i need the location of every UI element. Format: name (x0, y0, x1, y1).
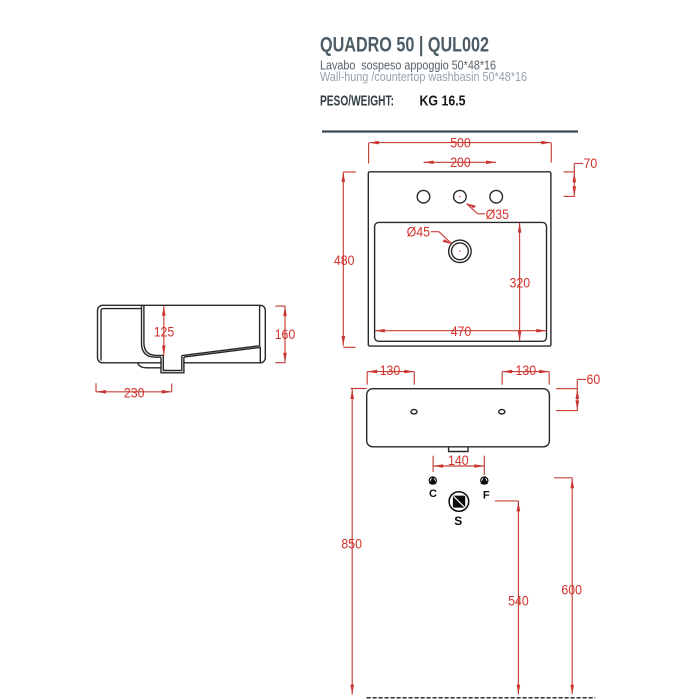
svg-text:Wall-hung /countertop washbasi: Wall-hung /countertop washbasin 50*48*16 (320, 69, 527, 84)
svg-text:320: 320 (510, 274, 531, 290)
svg-text:Ø35: Ø35 (486, 206, 510, 222)
svg-text:C: C (429, 488, 437, 500)
svg-text:540: 540 (508, 592, 529, 608)
svg-text:KG 16.5: KG 16.5 (420, 93, 466, 110)
svg-text:160: 160 (275, 326, 296, 342)
svg-text:500: 500 (450, 135, 471, 151)
svg-text:850: 850 (341, 535, 362, 551)
svg-text:230: 230 (124, 384, 145, 400)
svg-text:Ø45: Ø45 (407, 224, 431, 240)
svg-text:QUADRO 50 | QUL002: QUADRO 50 | QUL002 (320, 33, 489, 57)
svg-text:130: 130 (516, 362, 537, 378)
svg-text:F: F (483, 490, 490, 502)
svg-text:140: 140 (448, 452, 469, 468)
svg-text:60: 60 (587, 371, 601, 387)
svg-text:200: 200 (450, 154, 471, 170)
svg-text:70: 70 (584, 155, 598, 171)
svg-text:PESO/WEIGHT:: PESO/WEIGHT: (320, 93, 394, 110)
svg-text:125: 125 (154, 324, 175, 340)
svg-text:470: 470 (451, 323, 472, 339)
svg-text:600: 600 (561, 581, 582, 597)
svg-text:480: 480 (334, 252, 355, 268)
svg-text:130: 130 (380, 362, 401, 378)
svg-text:S: S (454, 514, 462, 528)
